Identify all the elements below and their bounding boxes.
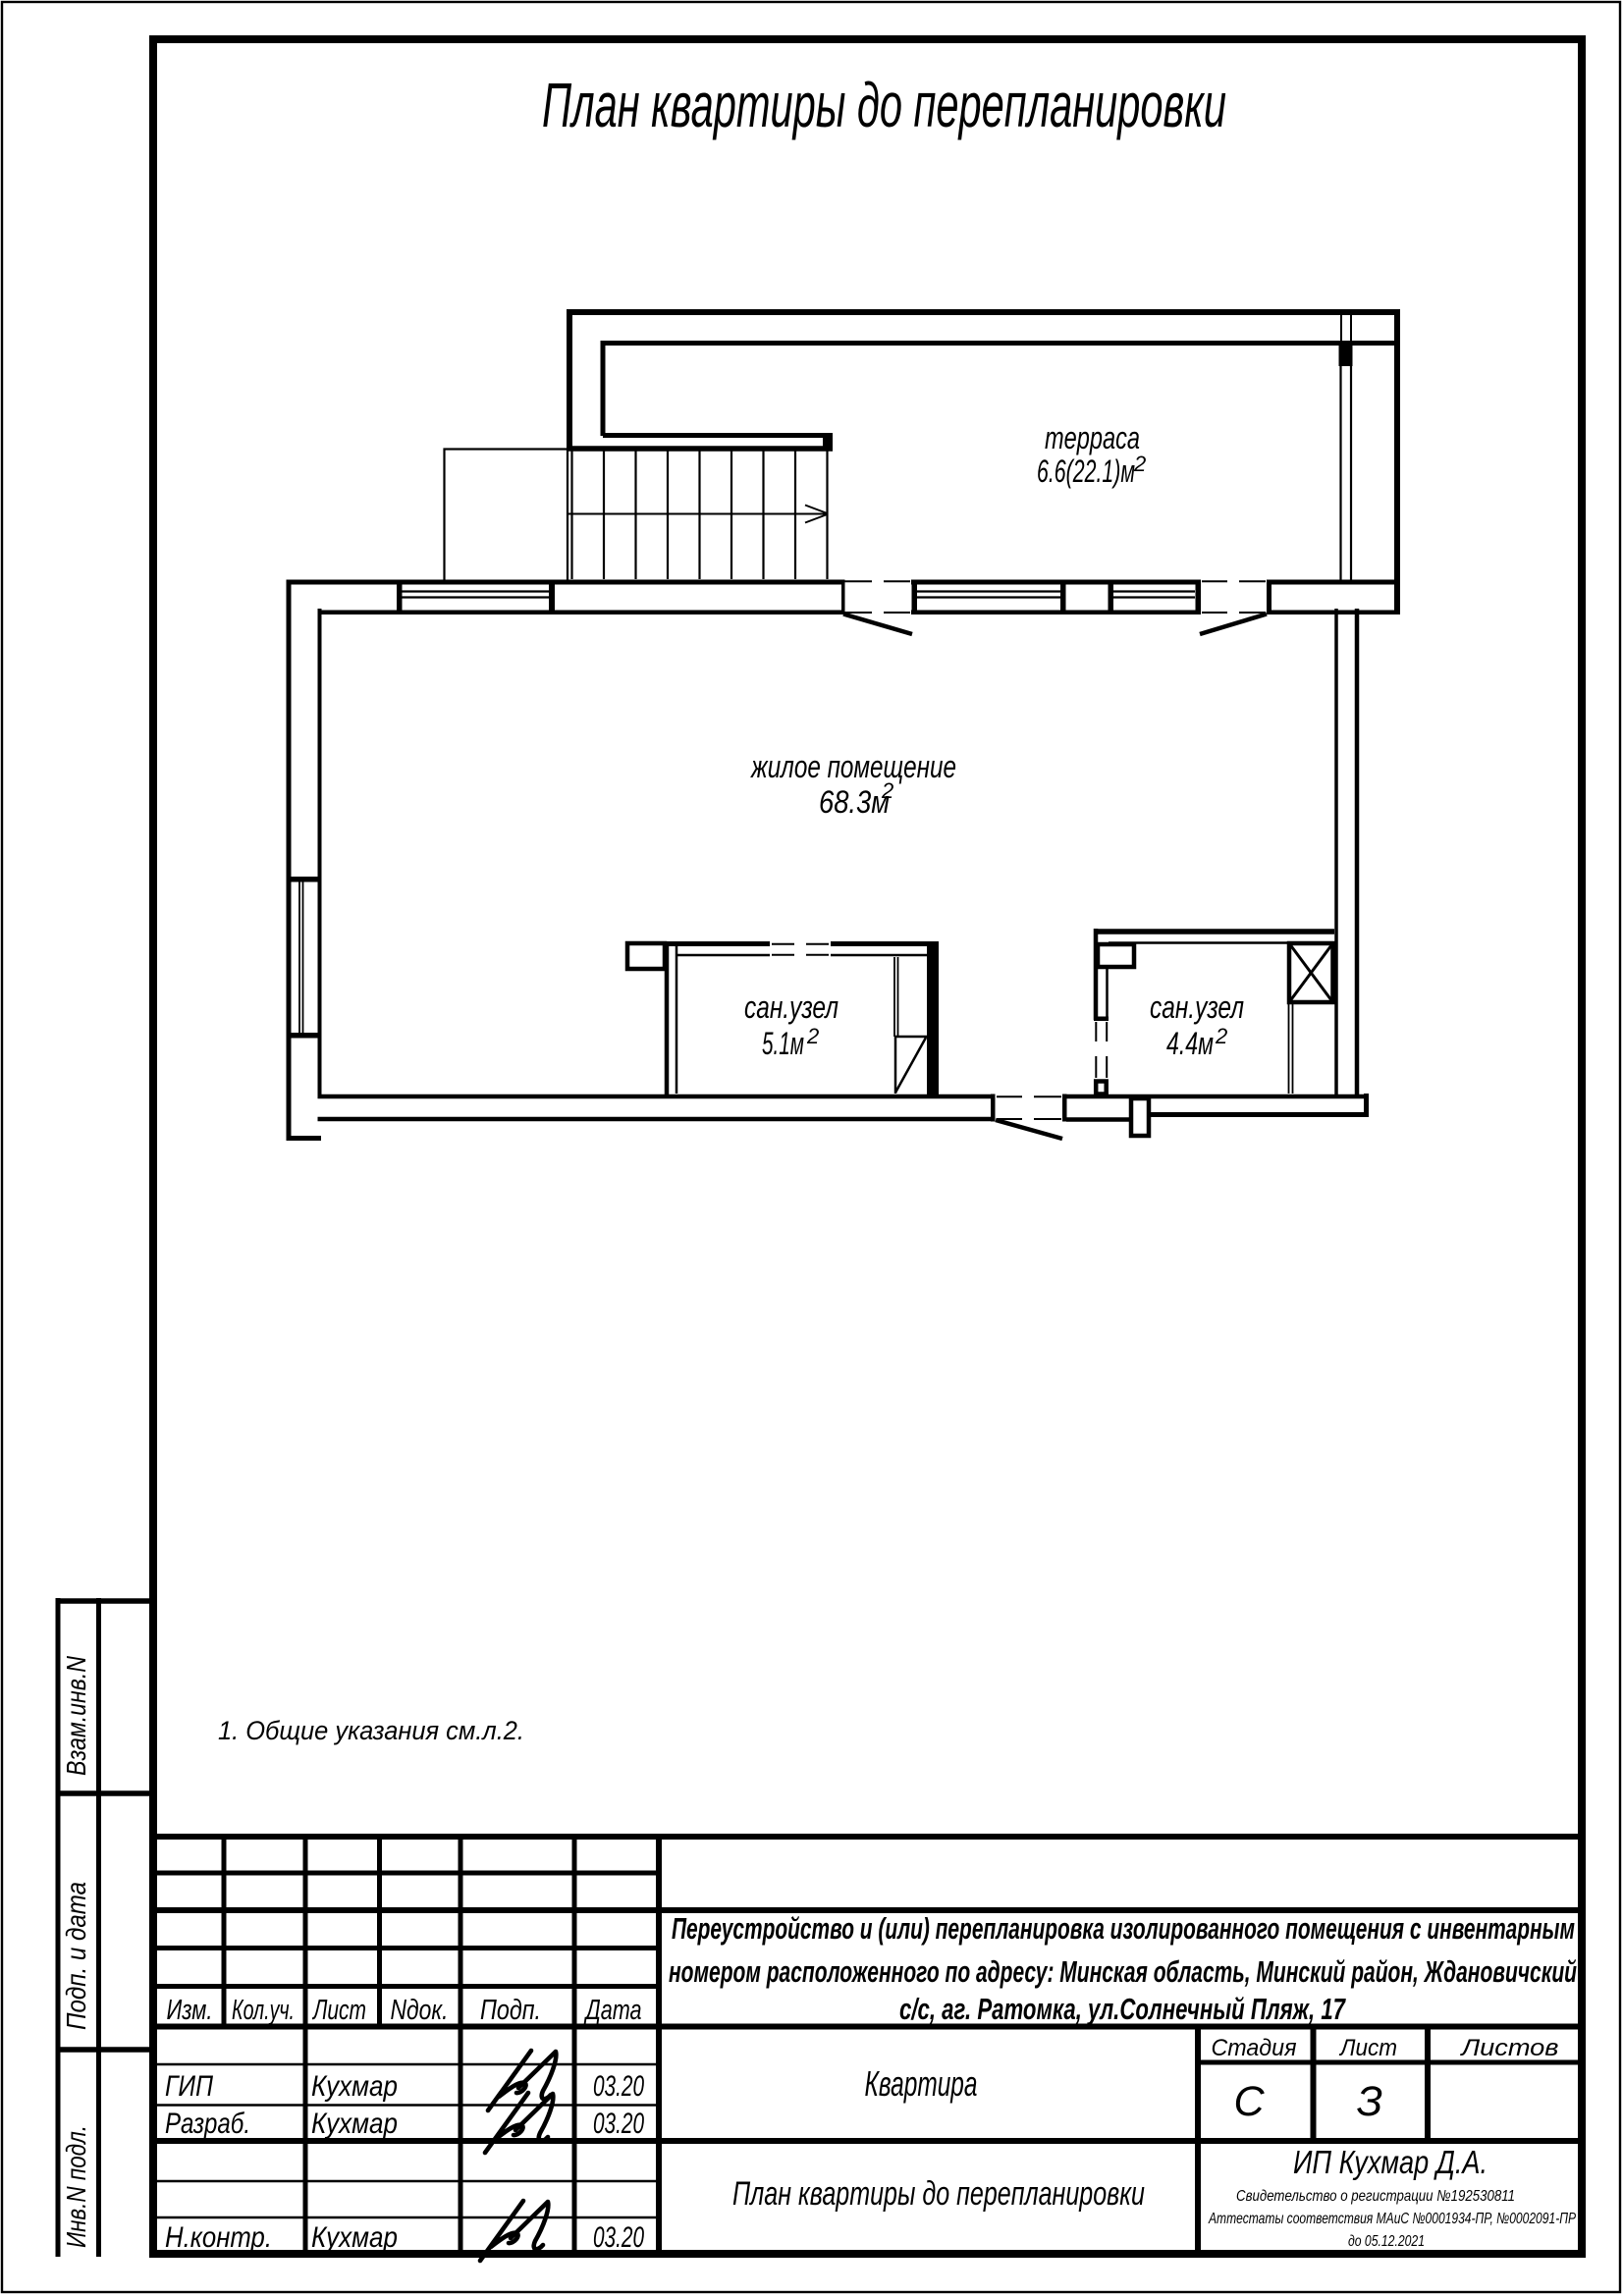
svg-text:03.20: 03.20	[593, 2070, 644, 2103]
svg-text:сан.узел: сан.узел	[1150, 989, 1244, 1025]
svg-text:Свидетельство о регистрации №1: Свидетельство о регистрации №192530811	[1236, 2188, 1515, 2205]
svg-text:Стадия: Стадия	[1212, 2035, 1297, 2061]
svg-text:Лист: Лист	[312, 1995, 366, 2026]
svg-text:2: 2	[881, 778, 893, 803]
svg-text:Взам.инв.N: Взам.инв.N	[61, 1655, 91, 1776]
svg-text:2: 2	[806, 1024, 819, 1048]
svg-text:2: 2	[1133, 452, 1146, 476]
svg-text:1. Общие указания см.л.2.: 1. Общие указания см.л.2.	[218, 1716, 524, 1745]
svg-text:03.20: 03.20	[593, 2108, 644, 2140]
svg-text:Квартира: Квартира	[865, 2063, 978, 2104]
svg-text:до 05.12.2021: до 05.12.2021	[1348, 2233, 1425, 2250]
svg-text:Лист: Лист	[1338, 2035, 1397, 2061]
svg-text:Аттестаты соответствия МАиС №0: Аттестаты соответствия МАиС №0001934-ПР,…	[1208, 2211, 1576, 2227]
svg-text:сан.узел: сан.узел	[744, 989, 839, 1025]
svg-text:5.1м: 5.1м	[762, 1026, 804, 1061]
svg-text:6.6(22.1)м: 6.6(22.1)м	[1037, 454, 1135, 489]
svg-text:03.20: 03.20	[593, 2221, 644, 2254]
svg-text:Кол.уч.: Кол.уч.	[232, 1995, 295, 2026]
svg-text:терраса: терраса	[1045, 420, 1140, 455]
svg-text:Н.контр.: Н.контр.	[165, 2221, 272, 2254]
svg-text:жилое помещение: жилое помещение	[749, 749, 956, 784]
svg-text:Кухмар: Кухмар	[311, 2221, 398, 2254]
svg-text:4.4м: 4.4м	[1166, 1026, 1214, 1061]
svg-text:номером расположенного по адре: номером расположенного по адресу: Минска…	[669, 1954, 1577, 1989]
svg-text:Дата: Дата	[583, 1995, 641, 2026]
svg-text:2: 2	[1215, 1024, 1227, 1048]
svg-text:Кухмар: Кухмар	[311, 2108, 398, 2140]
svg-text:План квартиры до перепланировк: План квартиры до перепланировки	[732, 2175, 1145, 2213]
svg-text:ГИП: ГИП	[165, 2070, 213, 2103]
svg-text:Nдок.: Nдок.	[391, 1995, 449, 2026]
svg-text:68.3м: 68.3м	[819, 784, 890, 820]
svg-text:Разраб.: Разраб.	[165, 2108, 250, 2140]
svg-text:План квартиры до перепланировк: План квартиры до перепланировки	[542, 70, 1226, 140]
svg-text:Изм.: Изм.	[167, 1995, 213, 2026]
svg-text:ИП Кухмар Д.А.: ИП Кухмар Д.А.	[1293, 2144, 1488, 2180]
svg-text:Подп.: Подп.	[480, 1995, 541, 2026]
svg-text:с/с, аг. Ратомка, ул.Солнечный: с/с, аг. Ратомка, ул.Солнечный Пляж, 17	[899, 1992, 1346, 2026]
svg-text:С: С	[1233, 2078, 1265, 2125]
svg-text:Листов: Листов	[1459, 2035, 1558, 2061]
svg-text:Подп. и дата: Подп. и дата	[61, 1882, 91, 2030]
svg-text:З: З	[1357, 2078, 1382, 2125]
svg-text:Переустройство и (или) перепла: Переустройство и (или) перепланировка из…	[672, 1911, 1575, 1946]
svg-text:Кухмар: Кухмар	[311, 2070, 398, 2103]
svg-text:Инв.N подл.: Инв.N подл.	[61, 2125, 91, 2248]
